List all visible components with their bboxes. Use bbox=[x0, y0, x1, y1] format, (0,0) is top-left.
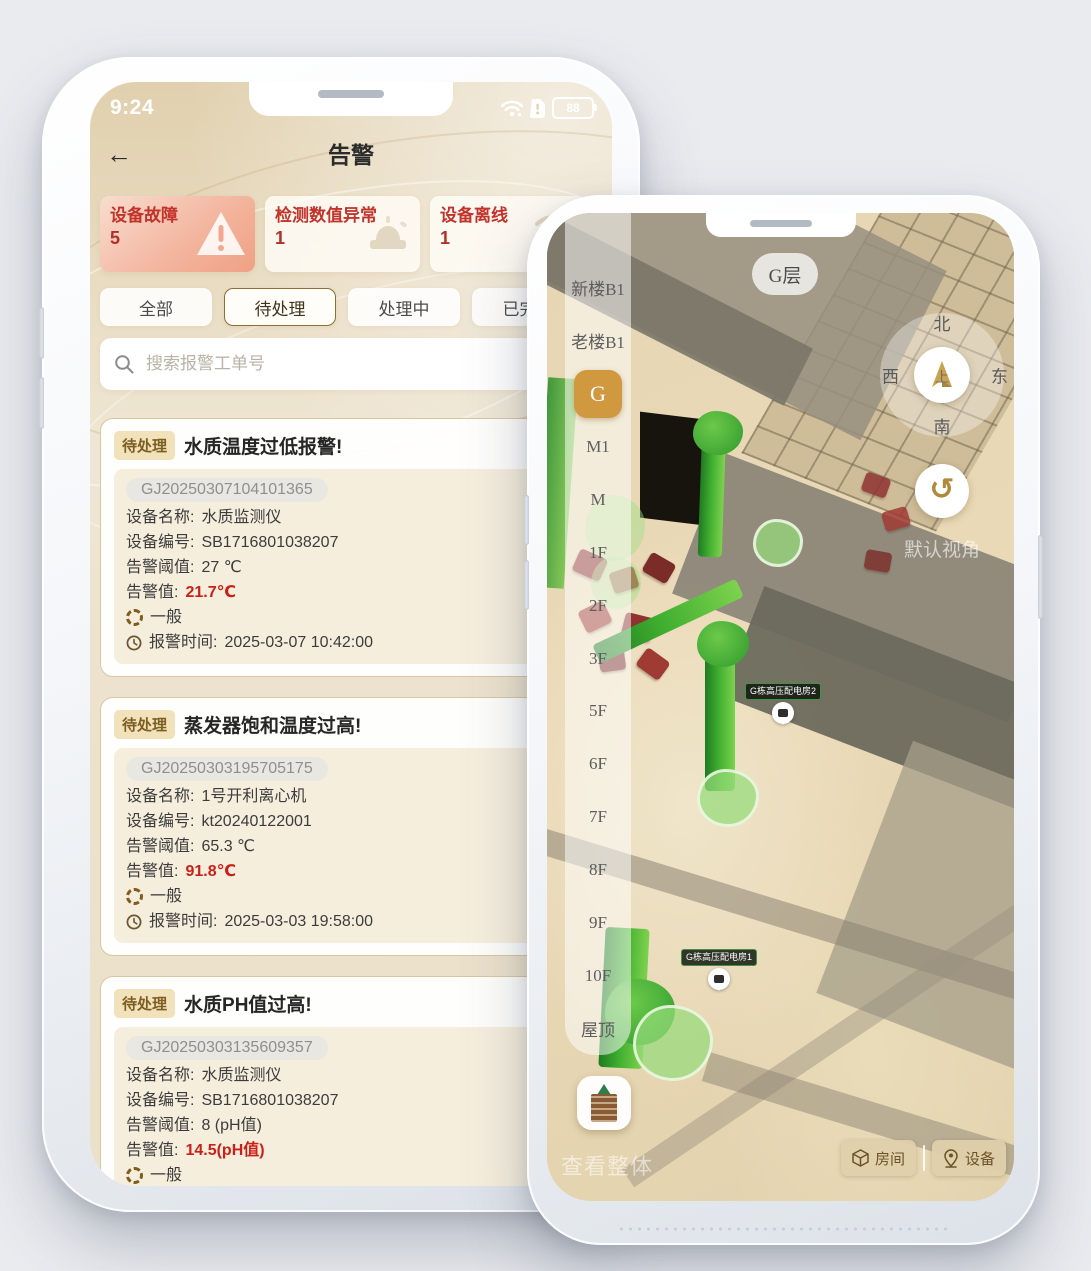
alarm-value: 21.7℃ bbox=[185, 580, 236, 605]
alarm-level: 一般 bbox=[150, 884, 182, 909]
floor-item-M[interactable]: M bbox=[565, 474, 631, 527]
page-background: 9:24 88 ← bbox=[0, 0, 1091, 1271]
work-order-id: GJ20250303135609357 bbox=[126, 1036, 328, 1060]
speaker-pill bbox=[750, 220, 812, 227]
threshold-label: 告警阈值: bbox=[126, 1113, 194, 1138]
building-viewer-screen: G栋高压配电房2 G栋高压配电房1 新楼B1 老楼B1 G M1 M 1F 2F… bbox=[547, 213, 1014, 1201]
phone-mockup-3d-building: G栋高压配电房2 G栋高压配电房1 新楼B1 老楼B1 G M1 M 1F 2F… bbox=[527, 195, 1040, 1245]
nav-bar: ← 告警 bbox=[90, 138, 612, 172]
floor-item-5F[interactable]: 5F bbox=[565, 685, 631, 738]
device-code: SB1716801038207 bbox=[201, 530, 338, 555]
alarm-detail-panel: GJ20250303135609357 设备名称:水质监测仪 设备编号:SB17… bbox=[114, 1027, 574, 1186]
mode-switch-bar: 房间 设备 bbox=[841, 1140, 1006, 1176]
search-bar[interactable] bbox=[100, 338, 588, 390]
device-name-label: 设备名称: bbox=[126, 784, 194, 809]
compass-needle-button[interactable]: 上 bbox=[914, 347, 970, 403]
device-name-label: 设备名称: bbox=[126, 1063, 194, 1088]
compass-north-label: 北 bbox=[934, 310, 951, 335]
tab-pending[interactable]: 待处理 bbox=[224, 288, 336, 326]
alarm-value-label: 告警值: bbox=[126, 1138, 178, 1163]
status-badge: 待处理 bbox=[114, 989, 175, 1018]
level-ring-icon bbox=[126, 1167, 143, 1184]
search-input[interactable] bbox=[144, 353, 574, 375]
wifi-icon bbox=[501, 100, 523, 117]
compass-east-label: 东 bbox=[991, 363, 1008, 388]
shrub bbox=[633, 1005, 713, 1081]
floor-selector: 新楼B1 老楼B1 G M1 M 1F 2F 3F 5F 6F 7F 8F 9F… bbox=[565, 213, 631, 1055]
view-overall-label: 查看整体 bbox=[561, 1149, 653, 1181]
alarm-time-label: 报警时间: bbox=[149, 630, 217, 655]
table-set bbox=[641, 551, 676, 584]
status-filter-tabs: 全部 待处理 处理中 已完成 bbox=[100, 288, 584, 326]
table-set bbox=[863, 549, 892, 573]
floor-item-7F[interactable]: 7F bbox=[565, 791, 631, 844]
battery-icon: 88 bbox=[552, 97, 594, 119]
device-name: 水质监测仪 bbox=[201, 505, 281, 530]
mode-divider bbox=[923, 1145, 925, 1171]
scene-marker-room1[interactable]: G栋高压配电房1 bbox=[673, 949, 765, 990]
search-icon bbox=[114, 354, 134, 374]
sim-alert-icon bbox=[530, 99, 545, 118]
marker-label: G栋高压配电房2 bbox=[745, 683, 821, 700]
floor-item-8F[interactable]: 8F bbox=[565, 844, 631, 897]
back-arrow-icon[interactable]: ← bbox=[106, 138, 132, 170]
alarm-level: 一般 bbox=[150, 1163, 182, 1186]
floor-item-1F[interactable]: 1F bbox=[565, 526, 631, 579]
alarm-card[interactable]: 待处理 水质PH值过高! GJ20250303135609357 设备名称:水质… bbox=[100, 976, 588, 1186]
notch bbox=[706, 213, 856, 237]
status-time: 9:24 bbox=[110, 96, 154, 120]
device-code: SB1716801038207 bbox=[201, 1088, 338, 1113]
clock-icon bbox=[126, 635, 142, 651]
alarm-title: 蒸发器饱和温度过高! bbox=[184, 711, 361, 738]
marker-label: G栋高压配电房1 bbox=[681, 949, 757, 966]
device-mode-label: 设备 bbox=[965, 1148, 995, 1169]
floor-item-2F[interactable]: 2F bbox=[565, 579, 631, 632]
floor-item-10F[interactable]: 10F bbox=[565, 949, 631, 1002]
compass-south-label: 南 bbox=[934, 413, 951, 438]
device-code-label: 设备编号: bbox=[126, 809, 194, 834]
alarm-time: 2025-03-03 19:58:00 bbox=[224, 909, 373, 934]
reset-view-caption: 默认视角 bbox=[892, 535, 992, 562]
floor-item-roof[interactable]: 屋顶 bbox=[565, 1002, 631, 1055]
volume-up-button bbox=[524, 495, 529, 545]
page-title: 告警 bbox=[90, 138, 612, 172]
device-name: 水质监测仪 bbox=[201, 1063, 281, 1088]
wall-shape bbox=[702, 1052, 1014, 1201]
floor-item-oldB1[interactable]: 老楼B1 bbox=[565, 314, 631, 367]
status-badge: 待处理 bbox=[114, 431, 175, 460]
compass-west-label: 西 bbox=[882, 363, 899, 388]
alarm-card[interactable]: 待处理 水质温度过低报警! GJ20250307104101365 设备名称:水… bbox=[100, 418, 588, 677]
current-floor-pill: G层 bbox=[752, 253, 818, 295]
threshold-value: 27 ℃ bbox=[201, 555, 241, 580]
device-code-label: 设备编号: bbox=[126, 1088, 194, 1113]
alarm-stat-cards: 设备故障 5 检测数值异常 1 设备离线 1 bbox=[100, 196, 585, 272]
reset-view-button[interactable]: ↺ bbox=[915, 464, 969, 518]
alarm-detail-panel: GJ20250303195705175 设备名称:1号开利离心机 设备编号:kt… bbox=[114, 748, 574, 943]
alarm-value-label: 告警值: bbox=[126, 859, 178, 884]
volume-down-button bbox=[524, 560, 529, 610]
level-ring-icon bbox=[126, 888, 143, 905]
scene-marker-room2[interactable]: G栋高压配电房2 bbox=[733, 683, 833, 724]
alarm-time: 2025-03-07 10:42:00 bbox=[224, 630, 373, 655]
device-name: 1号开利离心机 bbox=[201, 784, 306, 809]
alarm-title: 水质PH值过高! bbox=[184, 990, 312, 1017]
device-name-label: 设备名称: bbox=[126, 505, 194, 530]
warning-triangle-icon bbox=[195, 210, 247, 263]
threshold-label: 告警阈值: bbox=[126, 834, 194, 859]
shrub bbox=[697, 769, 759, 827]
green-canopy bbox=[693, 411, 743, 455]
device-code-label: 设备编号: bbox=[126, 530, 194, 555]
floor-item-3F[interactable]: 3F bbox=[565, 632, 631, 685]
level-ring-icon bbox=[126, 609, 143, 626]
camera-pin-icon bbox=[708, 968, 730, 990]
device-pin-icon bbox=[943, 1149, 959, 1168]
alarm-card[interactable]: 待处理 蒸发器饱和温度过高! GJ20250303195705175 设备名称:… bbox=[100, 697, 588, 956]
work-order-id: GJ20250303195705175 bbox=[126, 757, 328, 781]
volume-down-button bbox=[39, 377, 44, 429]
alarm-title: 水质温度过低报警! bbox=[184, 432, 342, 459]
work-order-id: GJ20250307104101365 bbox=[126, 478, 328, 502]
room-mode-button[interactable]: 房间 bbox=[841, 1140, 916, 1176]
power-button bbox=[1038, 535, 1043, 619]
threshold-value: 8 (pH值) bbox=[201, 1113, 261, 1138]
volume-up-button bbox=[39, 307, 44, 359]
selected-floor-box: G bbox=[574, 370, 622, 418]
alarm-detail-panel: GJ20250307104101365 设备名称:水质监测仪 设备编号:SB17… bbox=[114, 469, 574, 664]
compass-up-label: 上 bbox=[935, 367, 949, 387]
alarm-value-label: 告警值: bbox=[126, 580, 178, 605]
alarm-list: 待处理 水质温度过低报警! GJ20250307104101365 设备名称:水… bbox=[100, 418, 588, 1186]
floor-item-9F[interactable]: 9F bbox=[565, 896, 631, 949]
floor-item-6F[interactable]: 6F bbox=[565, 738, 631, 791]
status-badge: 待处理 bbox=[114, 710, 175, 739]
floor-item-G-selected[interactable]: G bbox=[565, 370, 631, 418]
table-set bbox=[635, 647, 671, 681]
compass[interactable]: 北 南 西 东 上 bbox=[880, 313, 1004, 437]
alarm-time-label: 报警时间: bbox=[149, 909, 217, 934]
battery-level: 88 bbox=[566, 101, 579, 115]
alarm-siren-icon bbox=[364, 210, 412, 261]
alarm-value: 91.8℃ bbox=[185, 859, 236, 884]
threshold-label: 告警阈值: bbox=[126, 555, 194, 580]
room-mode-label: 房间 bbox=[875, 1148, 905, 1169]
floor-item-newB1[interactable]: 新楼B1 bbox=[565, 261, 631, 314]
speaker-grille-dots bbox=[617, 1226, 950, 1232]
alarm-level: 一般 bbox=[150, 605, 182, 630]
camera-pin-icon bbox=[772, 702, 794, 724]
building-icon bbox=[589, 1084, 619, 1122]
clock-icon bbox=[126, 914, 142, 930]
tab-all[interactable]: 全部 bbox=[100, 288, 212, 326]
alarm-value: 14.5(pH值) bbox=[185, 1138, 264, 1163]
device-code: kt20240122001 bbox=[201, 809, 311, 834]
stat-card-abnormal-value[interactable]: 检测数值异常 1 bbox=[265, 196, 420, 272]
cube-icon bbox=[852, 1149, 869, 1167]
threshold-value: 65.3 ℃ bbox=[201, 834, 255, 859]
overview-building-button[interactable] bbox=[577, 1076, 631, 1130]
floor-item-M1[interactable]: M1 bbox=[565, 421, 631, 474]
device-mode-button[interactable]: 设备 bbox=[932, 1140, 1006, 1176]
status-bar: 9:24 88 bbox=[110, 94, 594, 122]
reset-icon: ↺ bbox=[929, 475, 954, 505]
tab-processing[interactable]: 处理中 bbox=[348, 288, 460, 326]
stat-card-device-fault[interactable]: 设备故障 5 bbox=[100, 196, 255, 272]
